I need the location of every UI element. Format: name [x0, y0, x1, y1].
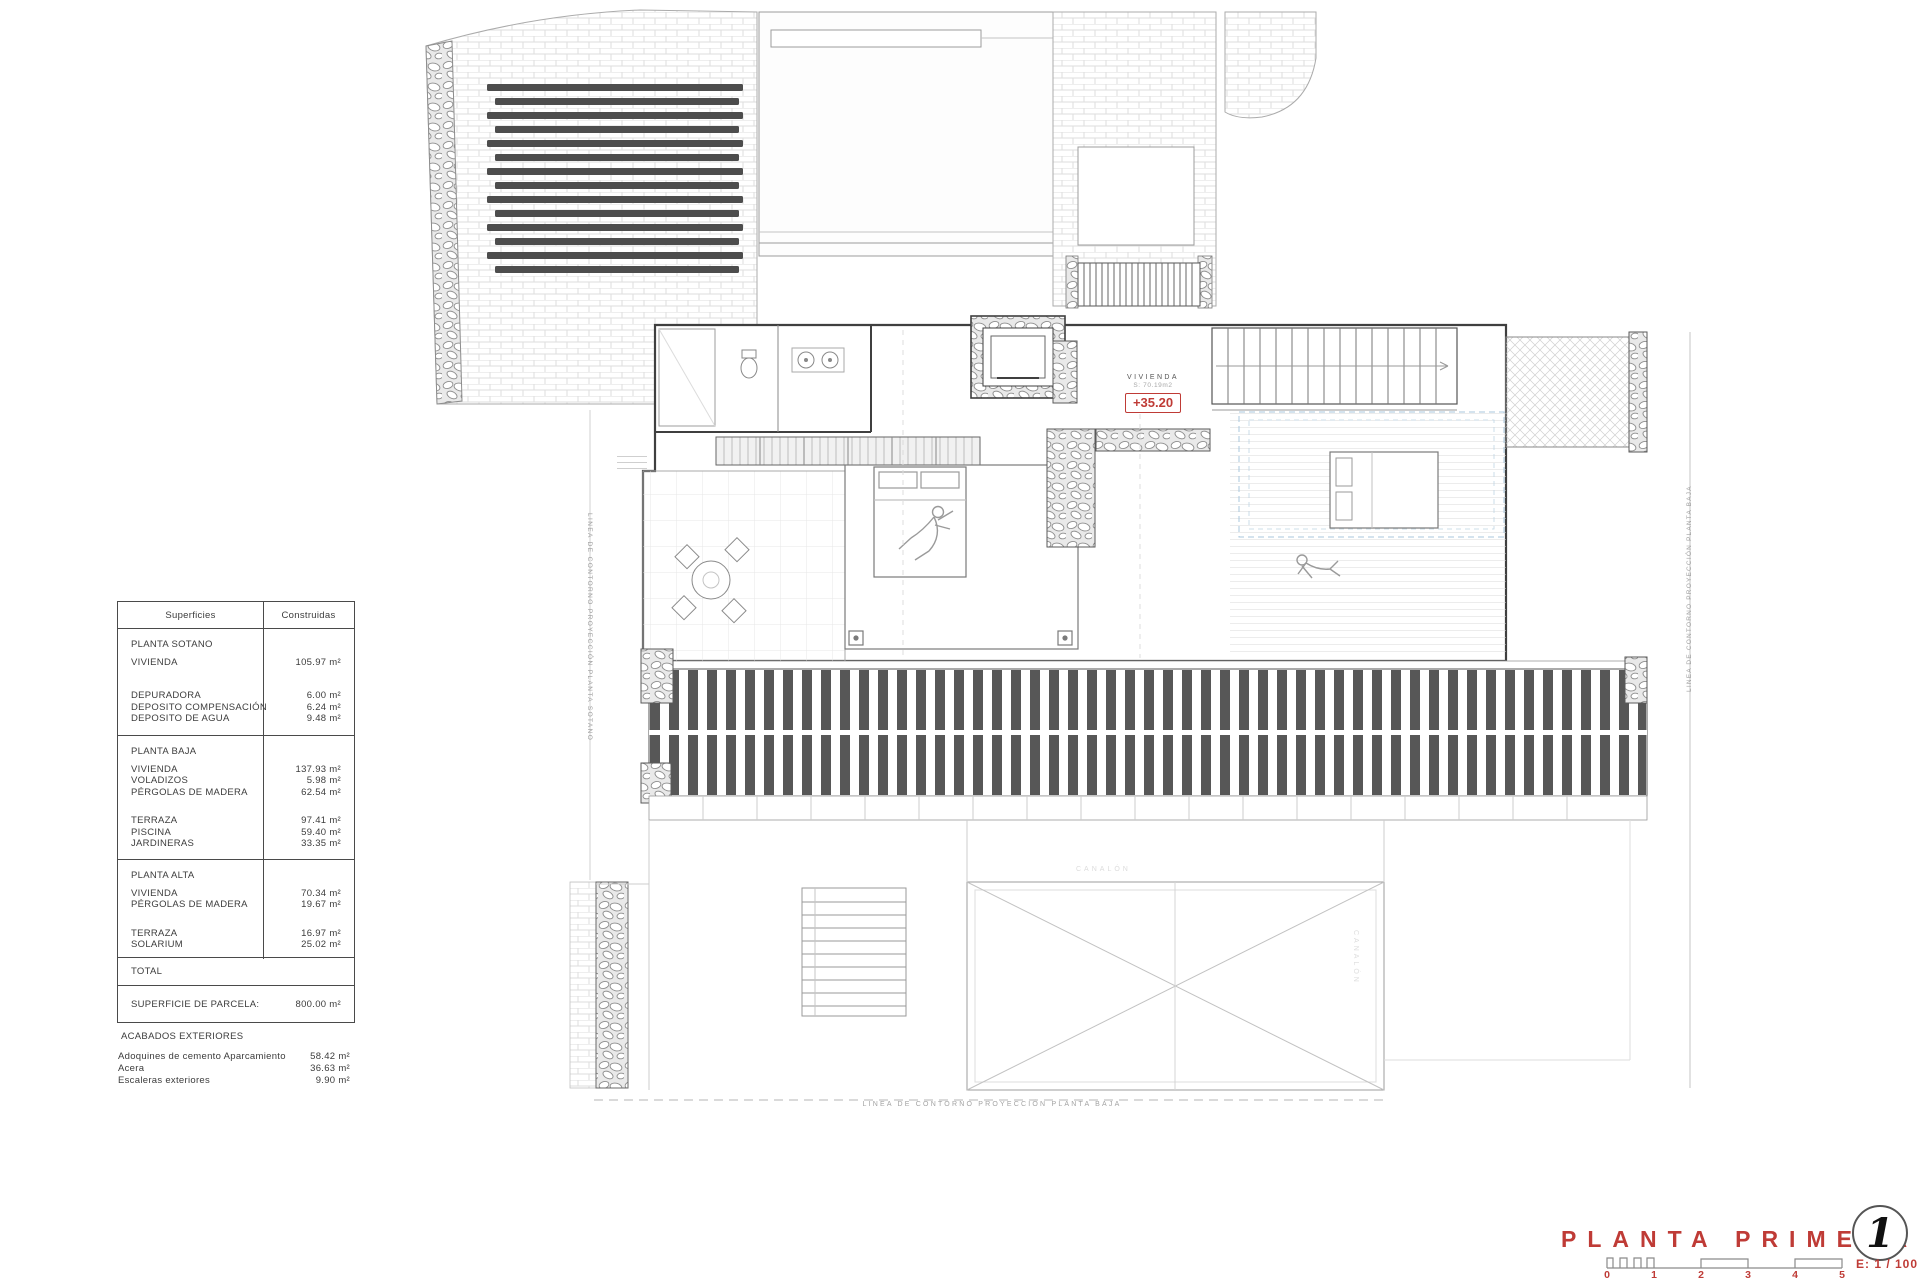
room-label-vivienda: VIVIENDA S: 70.19m2 +35.20	[1106, 374, 1200, 413]
table-row: PISCINA 59.40 m²	[118, 827, 354, 839]
roof-x-panels	[967, 820, 1630, 1090]
table-row: TERRAZA 97.41 m²	[118, 815, 354, 827]
exterior-stair-grille	[1066, 256, 1212, 308]
table-row: JARDINERAS 33.35 m²	[118, 838, 354, 850]
acabados-exteriores: ACABADOS EXTERIORES Adoquines de cemento…	[117, 1031, 350, 1087]
exterior-stair-bottom	[802, 888, 906, 1016]
tiny-annotation	[617, 456, 647, 474]
slat-deck-band	[641, 649, 1647, 820]
table-row: SOLARIUM 25.02 m²	[118, 939, 354, 951]
table-row: TERRAZA 16.97 m²	[118, 928, 354, 940]
boundary-label-left: LINEA DE CONTORNO PROYECCIÓN PLANTA SOTA…	[586, 513, 593, 798]
table-row: DEPURADORA 6.00 m²	[118, 690, 354, 702]
left-terrace	[643, 471, 845, 661]
table-row: VIVIENDA 137.93 m²	[118, 764, 354, 776]
scale-tick-0: 0	[1601, 1269, 1613, 1280]
room-area-text: S: 70.19m2	[1106, 382, 1200, 389]
right-terrace	[1506, 332, 1647, 452]
drawing-sheet: VIVIENDA S: 70.19m2 +35.20 LINEA DE CONT…	[0, 0, 1920, 1280]
section-title: PLANTA SOTANO	[118, 639, 354, 651]
section-planta-alta: PLANTA ALTA VIVIENDA 70.34 m² PÉRGOLAS D…	[118, 860, 354, 958]
elevator-shaft	[971, 316, 1065, 398]
section-title: PLANTA BAJA	[118, 746, 354, 758]
boundary-label-right: LINEA DE CONTORNO PROYECCIÓN PLANTA BAJA	[1686, 452, 1693, 692]
header-superficies: Superficies	[118, 610, 263, 621]
boundary-label-bottom: LINEA DE CONTORNO PROYECCIÓN PLANTA BAJA	[862, 1101, 1122, 1108]
table-row: DEPOSITO DE AGUA 9.48 m²	[118, 713, 354, 725]
room-name-text: VIVIENDA	[1106, 374, 1200, 381]
table-header-row: Superficies Construidas	[118, 602, 354, 629]
surfaces-table: Superficies Construidas PLANTA SOTANO VI…	[117, 601, 355, 1023]
section-total: TOTAL	[118, 958, 354, 986]
wardrobe	[716, 437, 980, 465]
gutter-label-horizontal: CANALÓN	[1076, 866, 1131, 873]
table-column-divider	[263, 602, 264, 959]
table-row-total: TOTAL	[118, 966, 354, 978]
scale-bar	[1604, 1254, 1854, 1272]
gutter-label-vertical: CANALÓN	[1352, 930, 1359, 985]
master-bedroom	[1230, 408, 1506, 658]
scale-tick-1: 1	[1648, 1269, 1660, 1280]
section-parcela: SUPERFICIE DE PARCELA: 800.00 m²	[118, 986, 354, 1023]
acabados-row: Acera 36.63 m²	[117, 1063, 350, 1075]
sheet-number-circle: 1	[1852, 1205, 1908, 1261]
interior-stair	[1212, 328, 1457, 410]
section-planta-baja: PLANTA BAJA VIVIENDA 137.93 m² VOLADIZOS…	[118, 736, 354, 860]
table-row: VOLADIZOS 5.98 m²	[118, 775, 354, 787]
terrain-hatch-topright	[1053, 12, 1316, 306]
scale-tick-3: 3	[1742, 1269, 1754, 1280]
table-row: PÉRGOLAS DE MADERA 62.54 m²	[118, 787, 354, 799]
table-row: VIVIENDA 70.34 m²	[118, 888, 354, 900]
table-row: PÉRGOLAS DE MADERA 19.67 m²	[118, 899, 354, 911]
table-row: VIVIENDA 105.97 m²	[118, 657, 354, 669]
sheet-number: 1	[1866, 1210, 1894, 1257]
acabados-title: ACABADOS EXTERIORES	[117, 1031, 350, 1042]
acabados-row: Escaleras exteriores 9.90 m²	[117, 1075, 350, 1087]
stone-wall-bottom-left	[570, 820, 649, 1090]
section-title: PLANTA ALTA	[118, 870, 354, 882]
table-row: DEPOSITO COMPENSACIÓN 6.24 m²	[118, 702, 354, 714]
room-level-badge: +35.20	[1125, 393, 1181, 413]
header-construidas: Construidas	[263, 610, 354, 621]
scale-tick-2: 2	[1695, 1269, 1707, 1280]
scale-tick-4: 4	[1789, 1269, 1801, 1280]
acabados-row: Adoquines de cemento Aparcamiento 58.42 …	[117, 1051, 350, 1063]
table-row-parcela: SUPERFICIE DE PARCELA: 800.00 m²	[118, 999, 354, 1011]
scale-label: E: 1 / 100	[1856, 1257, 1918, 1271]
section-planta-sotano: PLANTA SOTANO VIVIENDA 105.97 m² DEPURAD…	[118, 629, 354, 736]
scale-tick-5: 5	[1836, 1269, 1848, 1280]
roof-top-middle	[759, 12, 1053, 256]
bedroom-1	[845, 465, 1078, 649]
